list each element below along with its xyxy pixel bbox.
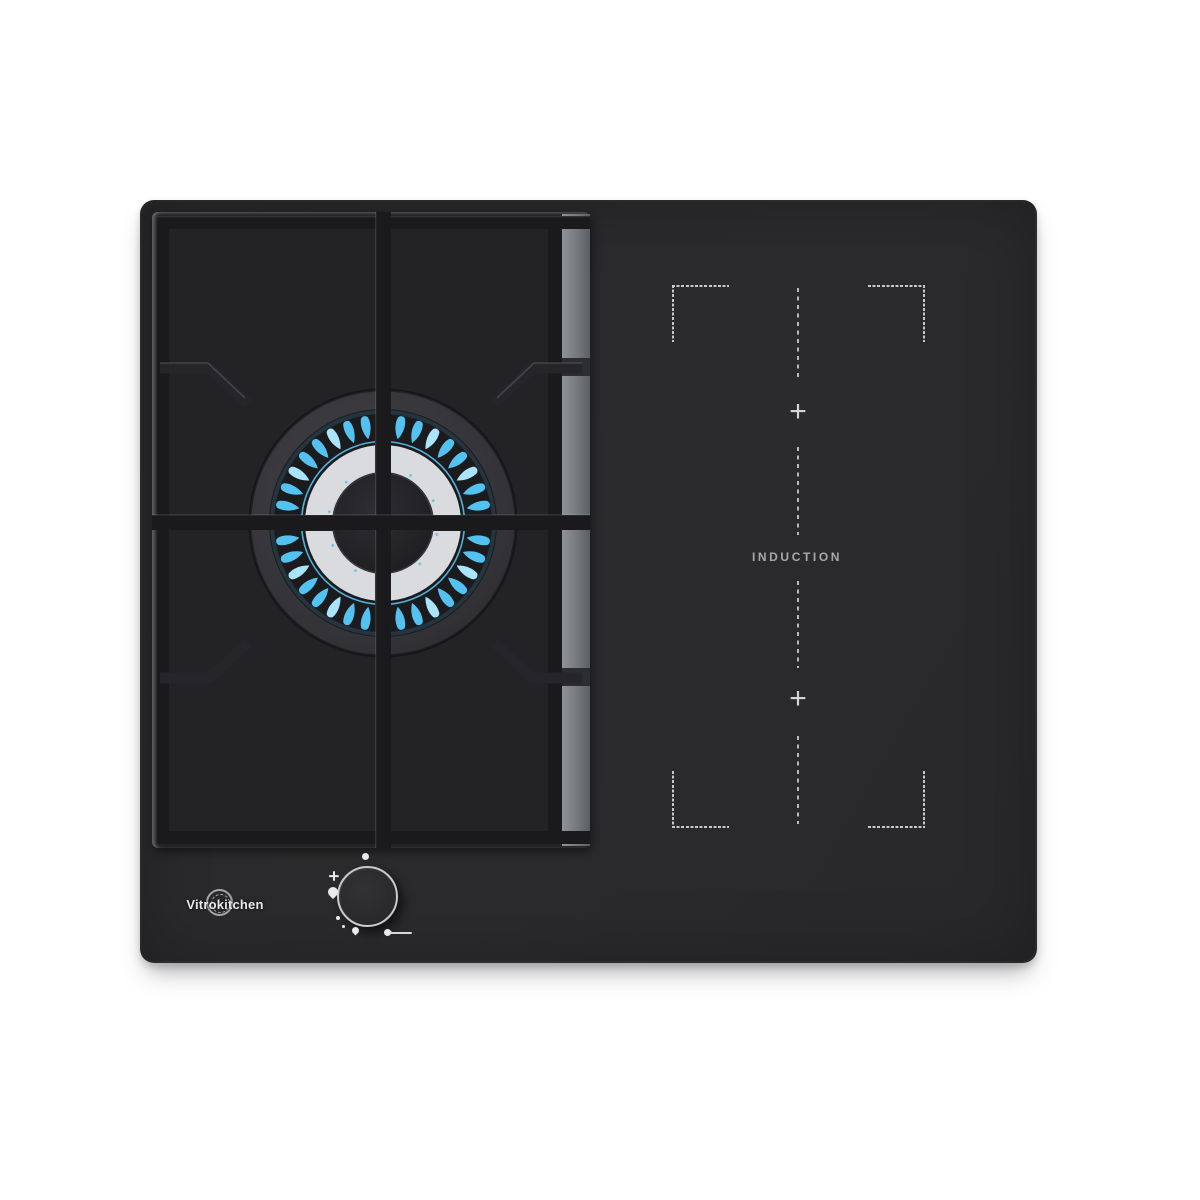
hob: Vitrokitchen +: [140, 200, 1037, 963]
zone-divider-dashes: [797, 447, 799, 535]
pan-support-cross: [152, 212, 590, 848]
zone-bracket-top-right: [868, 285, 925, 287]
zone-divider-dashes: [797, 581, 799, 668]
gas-burner-svg: [152, 212, 590, 848]
zone-divider-dashes: [797, 288, 799, 378]
zone-center-mark-top: +: [783, 397, 813, 427]
product-image: Vitrokitchen +: [0, 0, 1200, 1200]
knob-off-dot-icon: [362, 853, 369, 860]
induction-label: INDUCTION: [717, 550, 877, 564]
zone-bracket-bottom-left: [672, 826, 729, 828]
zone-divider-dashes: [797, 736, 799, 824]
zone-bracket-bottom-left-arm: [672, 771, 674, 828]
knob-spark-icon: [329, 871, 339, 881]
knob-dot-tiny: [342, 925, 345, 928]
zone-bracket-top-left-arm: [672, 285, 674, 342]
zone-bracket-top-right-arm: [923, 285, 925, 342]
touch-control-panel: 0: [140, 895, 1037, 921]
knob-ignition-flame-icon: [384, 929, 412, 937]
knob-small-flame-icon: [351, 926, 361, 936]
gas-section-glass: [152, 212, 590, 848]
zone-bracket-bottom-right-arm: [923, 771, 925, 828]
zone-bracket-top-left: [672, 285, 729, 287]
zone-center-mark-bottom: +: [783, 684, 813, 714]
zone-bracket-bottom-right: [868, 826, 925, 828]
